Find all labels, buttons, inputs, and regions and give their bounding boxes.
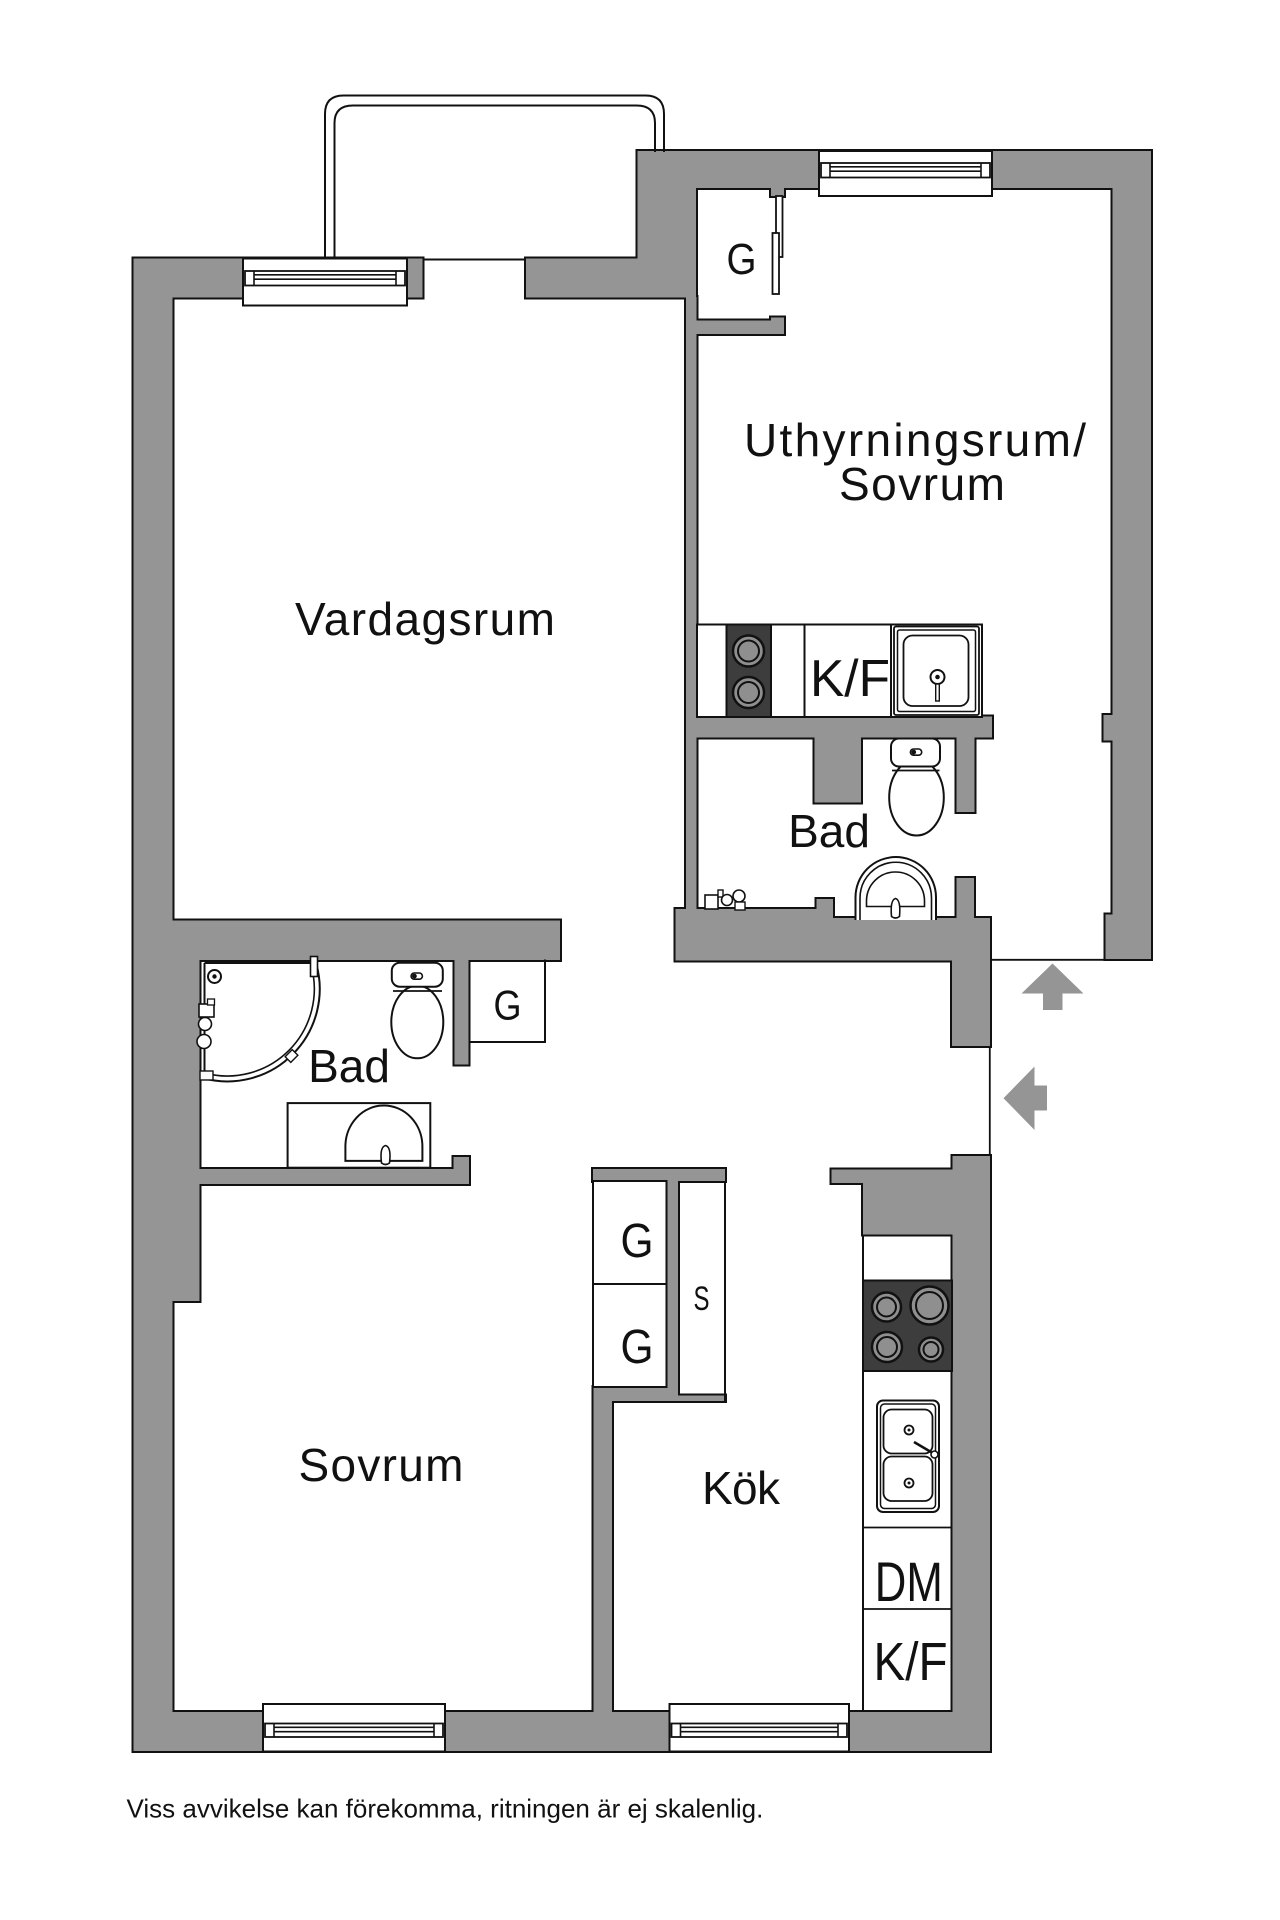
svg-text:G: G (494, 982, 522, 1029)
svg-text:S: S (694, 1280, 710, 1318)
svg-text:K/F: K/F (874, 1632, 948, 1692)
svg-text:Kök: Kök (702, 1462, 781, 1514)
svg-text:Bad: Bad (308, 1040, 390, 1092)
svg-text:K/F: K/F (810, 650, 890, 708)
svg-text:G: G (621, 1215, 654, 1268)
svg-text:Bad: Bad (788, 805, 870, 857)
svg-text:Sovrum: Sovrum (839, 458, 1005, 510)
svg-text:Sovrum: Sovrum (299, 1439, 464, 1491)
svg-text:G: G (727, 235, 757, 284)
svg-text:Viss avvikelse kan förekomma,: Viss avvikelse kan förekomma, ritningen … (127, 1794, 764, 1824)
svg-text:G: G (621, 1321, 654, 1374)
svg-text:Vardagsrum: Vardagsrum (295, 593, 555, 645)
svg-text:DM: DM (875, 1550, 943, 1613)
